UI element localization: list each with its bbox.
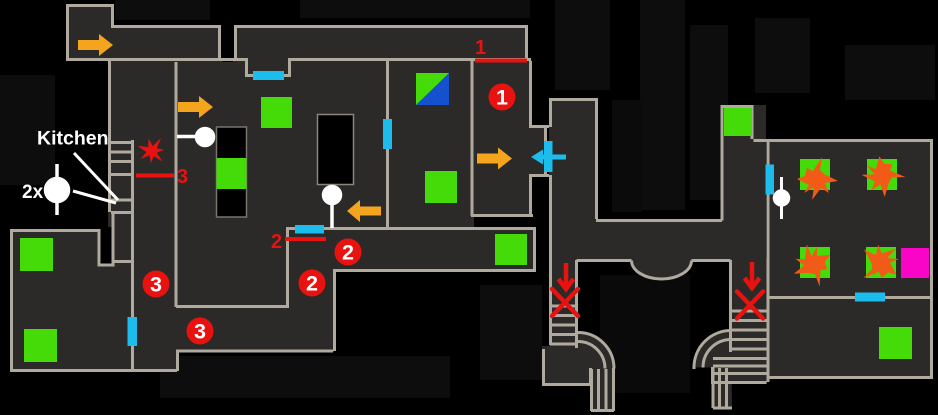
svg-text:3: 3 xyxy=(194,320,206,344)
svg-text:3: 3 xyxy=(150,273,162,297)
svg-text:3: 3 xyxy=(177,166,188,188)
svg-text:2: 2 xyxy=(342,241,354,265)
svg-text:2: 2 xyxy=(271,231,282,253)
svg-text:2x: 2x xyxy=(22,182,44,203)
svg-text:Kitchen: Kitchen xyxy=(37,128,109,150)
svg-text:2: 2 xyxy=(306,272,318,296)
svg-text:1: 1 xyxy=(496,86,508,110)
svg-text:1: 1 xyxy=(475,37,486,59)
